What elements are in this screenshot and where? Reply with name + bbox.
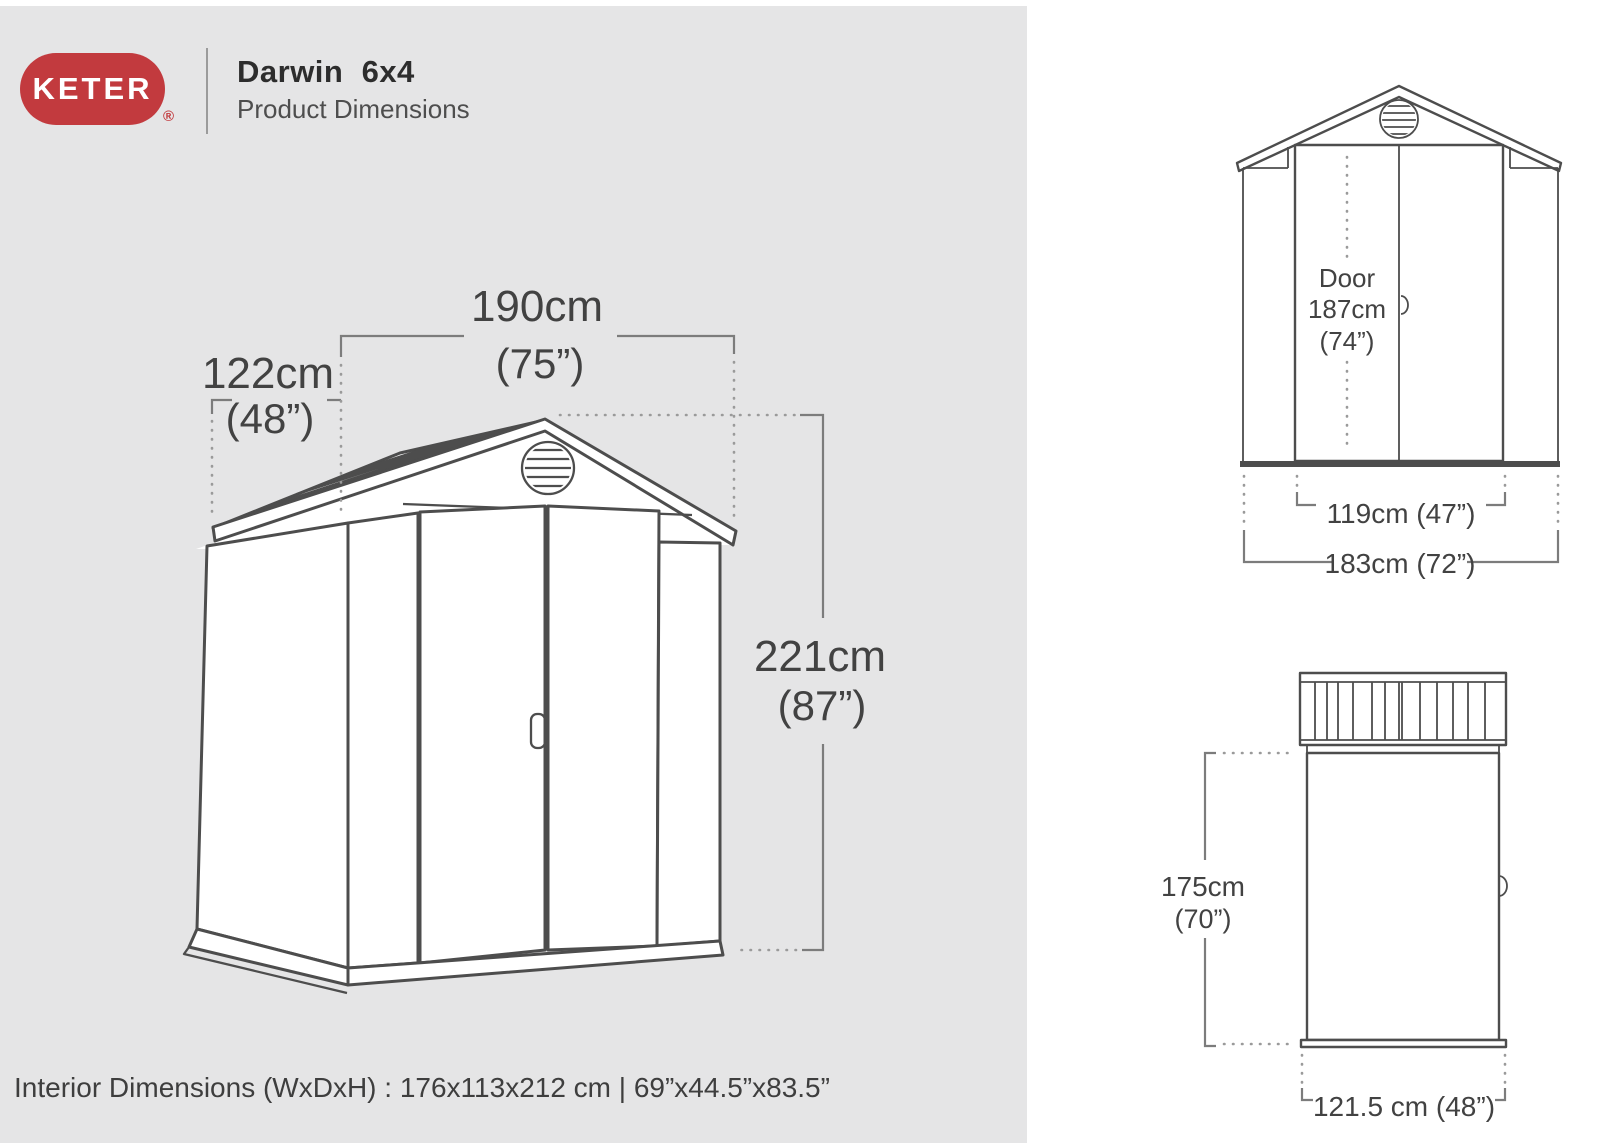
front-door-width-label: 119cm (47”) bbox=[1327, 498, 1476, 529]
header-divider bbox=[206, 48, 208, 134]
door-label-line1: Door bbox=[1319, 263, 1376, 293]
front-elevation-drawing bbox=[1237, 86, 1561, 467]
door-label-line3: (74”) bbox=[1320, 326, 1375, 356]
main-height-inches-label: (87”) bbox=[778, 682, 867, 729]
shed-front-elevation-diagram: Door 187cm (74”) 119cm (47”) 183cm (72”) bbox=[1185, 75, 1600, 600]
registered-trademark-icon: ® bbox=[163, 108, 174, 125]
front-right-post bbox=[657, 542, 720, 946]
main-width-inches-label: (75”) bbox=[496, 340, 585, 387]
side-depth-label: 121.5 cm (48”) bbox=[1313, 1091, 1495, 1122]
keter-logo: KETER bbox=[20, 53, 165, 125]
shed-side-elevation-diagram: 175cm (70”) 121.5 cm (48”) bbox=[1148, 640, 1600, 1135]
side-height-inches-label: (70”) bbox=[1174, 904, 1231, 934]
keter-logo-text: KETER bbox=[32, 71, 152, 107]
front-base-bar bbox=[1240, 461, 1560, 467]
main-width-label: 190cm bbox=[471, 282, 603, 331]
main-depth-inches-label: (48”) bbox=[226, 395, 315, 442]
main-height-label: 221cm bbox=[754, 632, 886, 681]
product-dimensions-sheet: KETER ® Darwin 6x4 Product Dimensions bbox=[0, 0, 1600, 1143]
right-door bbox=[548, 506, 659, 950]
main-depth-label: 122cm bbox=[202, 349, 334, 398]
door-label-line2: 187cm bbox=[1308, 294, 1386, 324]
side-elevation-drawing bbox=[1300, 673, 1507, 1047]
left-door bbox=[420, 506, 545, 963]
side-height-label: 175cm bbox=[1161, 871, 1245, 902]
page-title: Darwin 6x4 bbox=[237, 54, 415, 90]
shed-drawing bbox=[184, 419, 736, 993]
page-subtitle: Product Dimensions bbox=[237, 94, 470, 125]
side-wall bbox=[197, 523, 348, 968]
front-total-width-label: 183cm (72”) bbox=[1325, 548, 1476, 579]
shed-perspective-diagram: 190cm (75”) 122cm (48”) 221cm (87”) bbox=[130, 270, 890, 1000]
side-wall-panel bbox=[1307, 753, 1499, 1040]
interior-dimensions-note: Interior Dimensions (WxDxH) : 176x113x21… bbox=[14, 1072, 830, 1104]
side-roof-band bbox=[1300, 673, 1506, 745]
side-base-bar bbox=[1301, 1040, 1506, 1047]
front-left-post bbox=[348, 513, 418, 968]
